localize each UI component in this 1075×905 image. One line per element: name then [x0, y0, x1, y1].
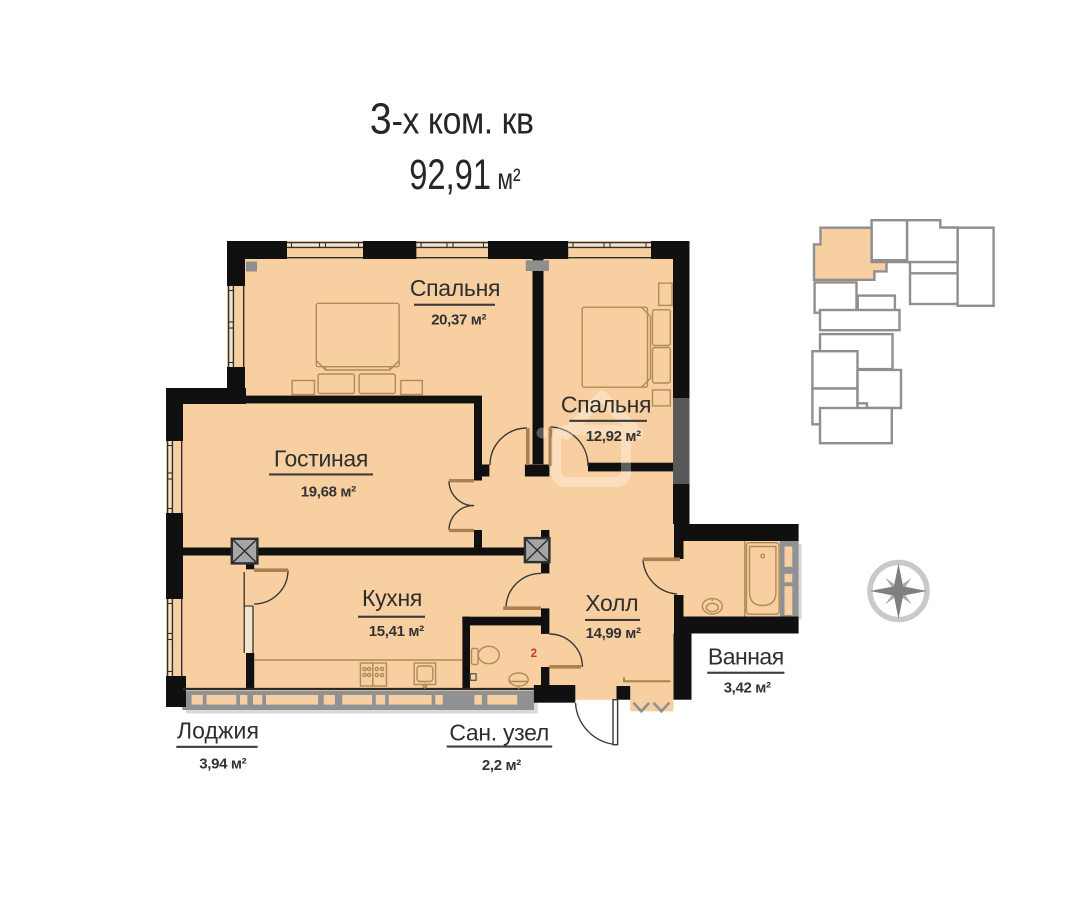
- svg-text:3-х ком. кв: 3-х ком. кв: [370, 94, 534, 144]
- svg-text:2: 2: [531, 648, 537, 660]
- svg-text:Кухня: Кухня: [362, 585, 422, 611]
- svg-text:Сан. узел: Сан. узел: [449, 720, 549, 746]
- svg-text:14,99 м²: 14,99 м²: [586, 625, 641, 642]
- svg-text:Спальня: Спальня: [410, 275, 500, 301]
- svg-text:Лоджия: Лоджия: [177, 717, 259, 743]
- svg-text:Спальня: Спальня: [561, 392, 651, 418]
- svg-text:Холл: Холл: [585, 590, 638, 616]
- svg-text:Ванная: Ванная: [708, 644, 784, 670]
- svg-text:3,94 м²: 3,94 м²: [199, 756, 246, 773]
- svg-text:Гостиная: Гостиная: [274, 446, 368, 472]
- svg-text:15,41 м²: 15,41 м²: [369, 623, 424, 640]
- svg-text:12,92 м²: 12,92 м²: [586, 428, 641, 445]
- svg-text:3,42 м²: 3,42 м²: [724, 680, 771, 697]
- svg-text:19,68 м²: 19,68 м²: [301, 483, 356, 500]
- svg-text:20,37 м²: 20,37 м²: [431, 312, 486, 329]
- svg-text:2,2 м²: 2,2 м²: [482, 757, 521, 774]
